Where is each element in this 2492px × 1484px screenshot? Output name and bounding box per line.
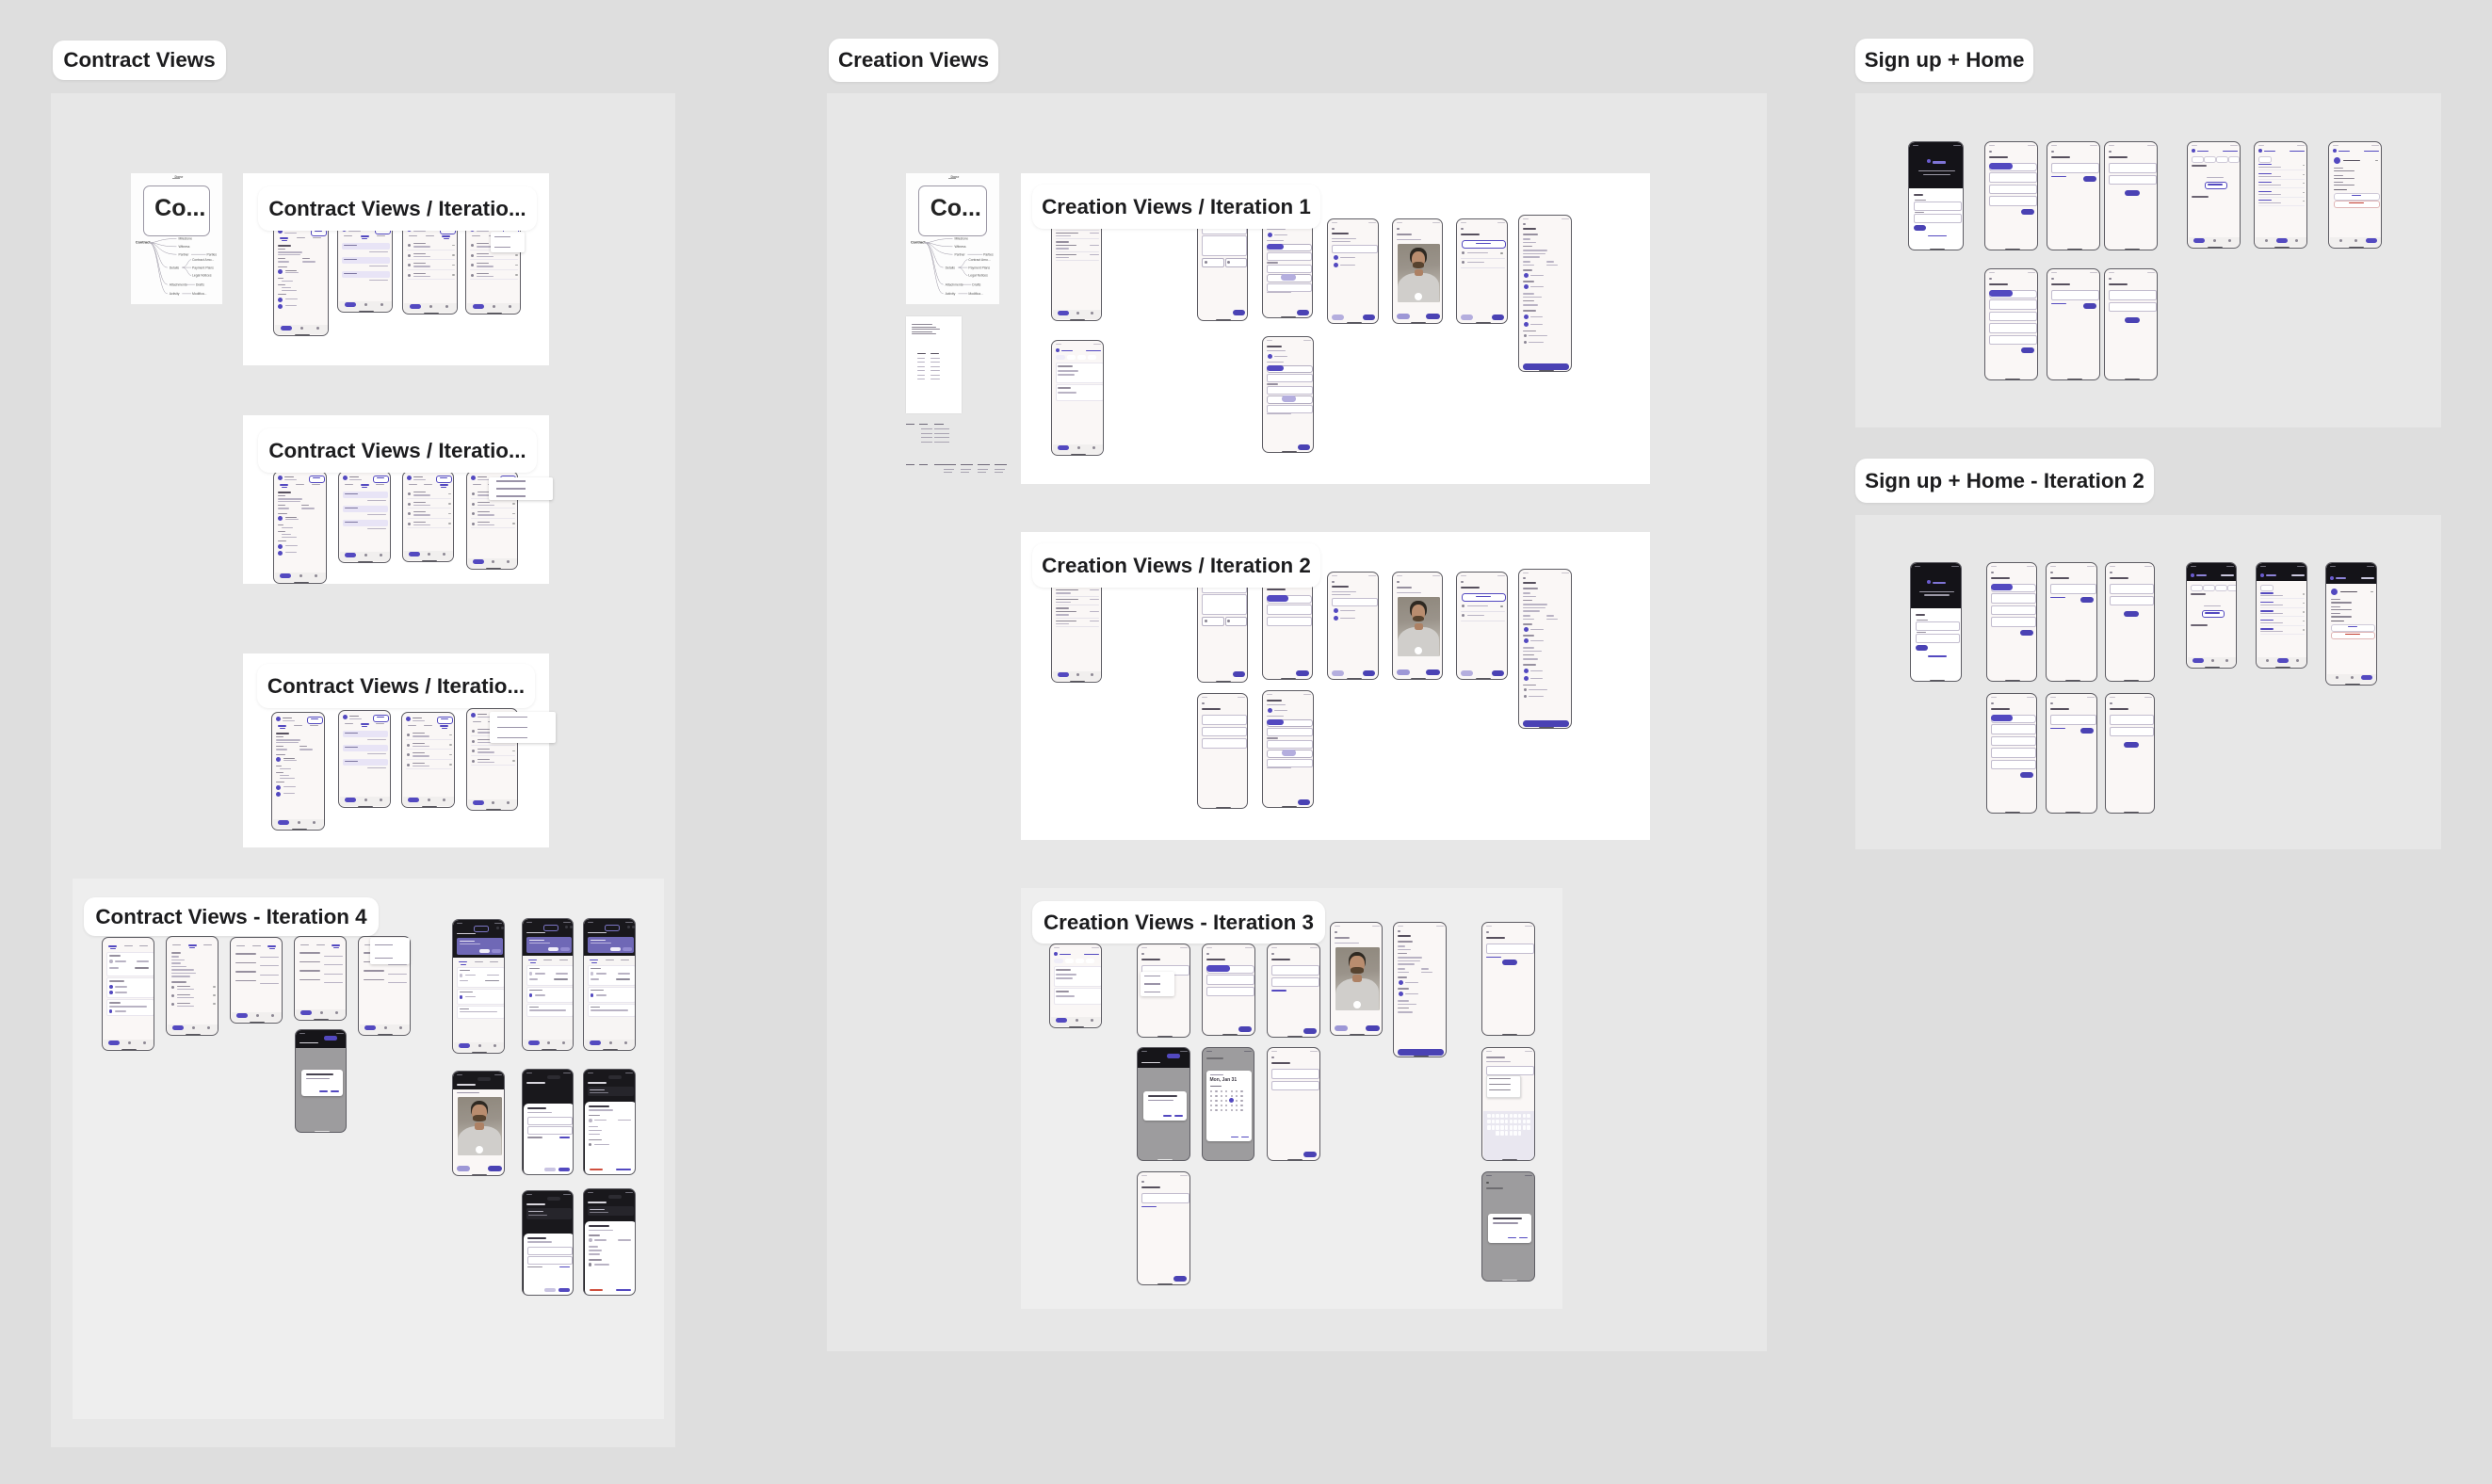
svg-text:Drafts: Drafts (972, 282, 980, 286)
svg-text:Drafts: Drafts (196, 282, 204, 286)
svg-text:Attachments: Attachments (946, 282, 963, 286)
svg-text:Modifica...: Modifica... (968, 292, 983, 296)
svg-text:Contract Amo...: Contract Amo... (968, 258, 990, 262)
svg-text:Activity: Activity (170, 292, 180, 296)
svg-text:Partner: Partner (954, 252, 965, 256)
svg-text:Payment Plans: Payment Plans (192, 266, 214, 269)
svg-text:Parties: Parties (207, 252, 218, 256)
svg-text:Witness: Witness (954, 245, 965, 249)
svg-text:Witness: Witness (178, 245, 189, 249)
svg-text:Milestone: Milestone (178, 237, 192, 241)
svg-text:Contract: Contract (911, 241, 926, 245)
svg-text:Attachments: Attachments (170, 282, 187, 286)
svg-text:Legal Notices: Legal Notices (192, 274, 212, 278)
svg-text:Contract: Contract (136, 241, 151, 245)
svg-text:Contract Amo...: Contract Amo... (192, 258, 214, 262)
svg-text:Parties: Parties (983, 252, 994, 256)
svg-text:Activity: Activity (946, 292, 956, 296)
svg-text:Details: Details (946, 266, 956, 269)
svg-text:Partner: Partner (178, 252, 189, 256)
svg-text:Milestone: Milestone (954, 237, 968, 241)
svg-text:Payment Plans: Payment Plans (968, 266, 990, 269)
svg-text:Legal Notices: Legal Notices (968, 274, 988, 278)
svg-text:Modifica...: Modifica... (192, 292, 207, 296)
svg-text:Details: Details (170, 266, 180, 269)
